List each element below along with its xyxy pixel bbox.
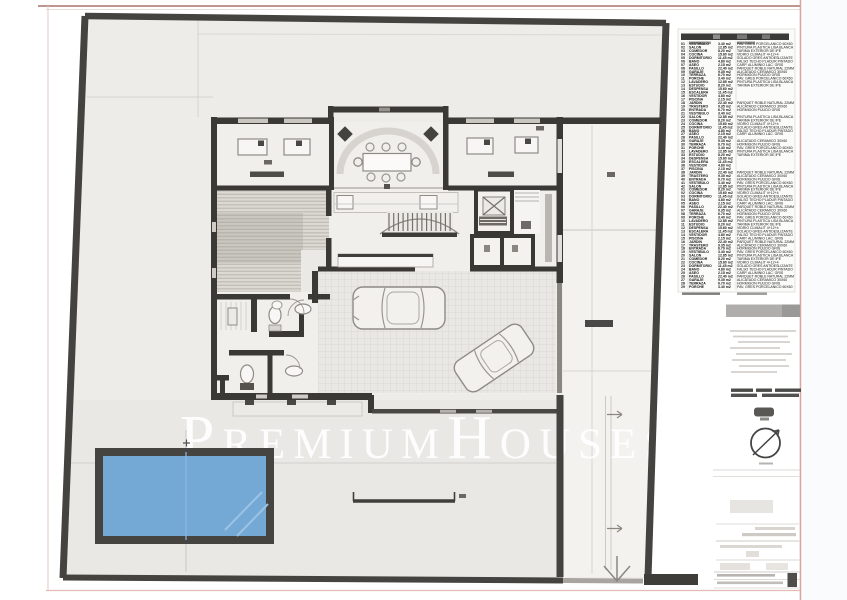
svg-text:29PORCHE3.40 m2PAV. GRES PORCE: 29PORCHE3.40 m2PAV. GRES PORCELANICO 60X… bbox=[681, 285, 793, 289]
